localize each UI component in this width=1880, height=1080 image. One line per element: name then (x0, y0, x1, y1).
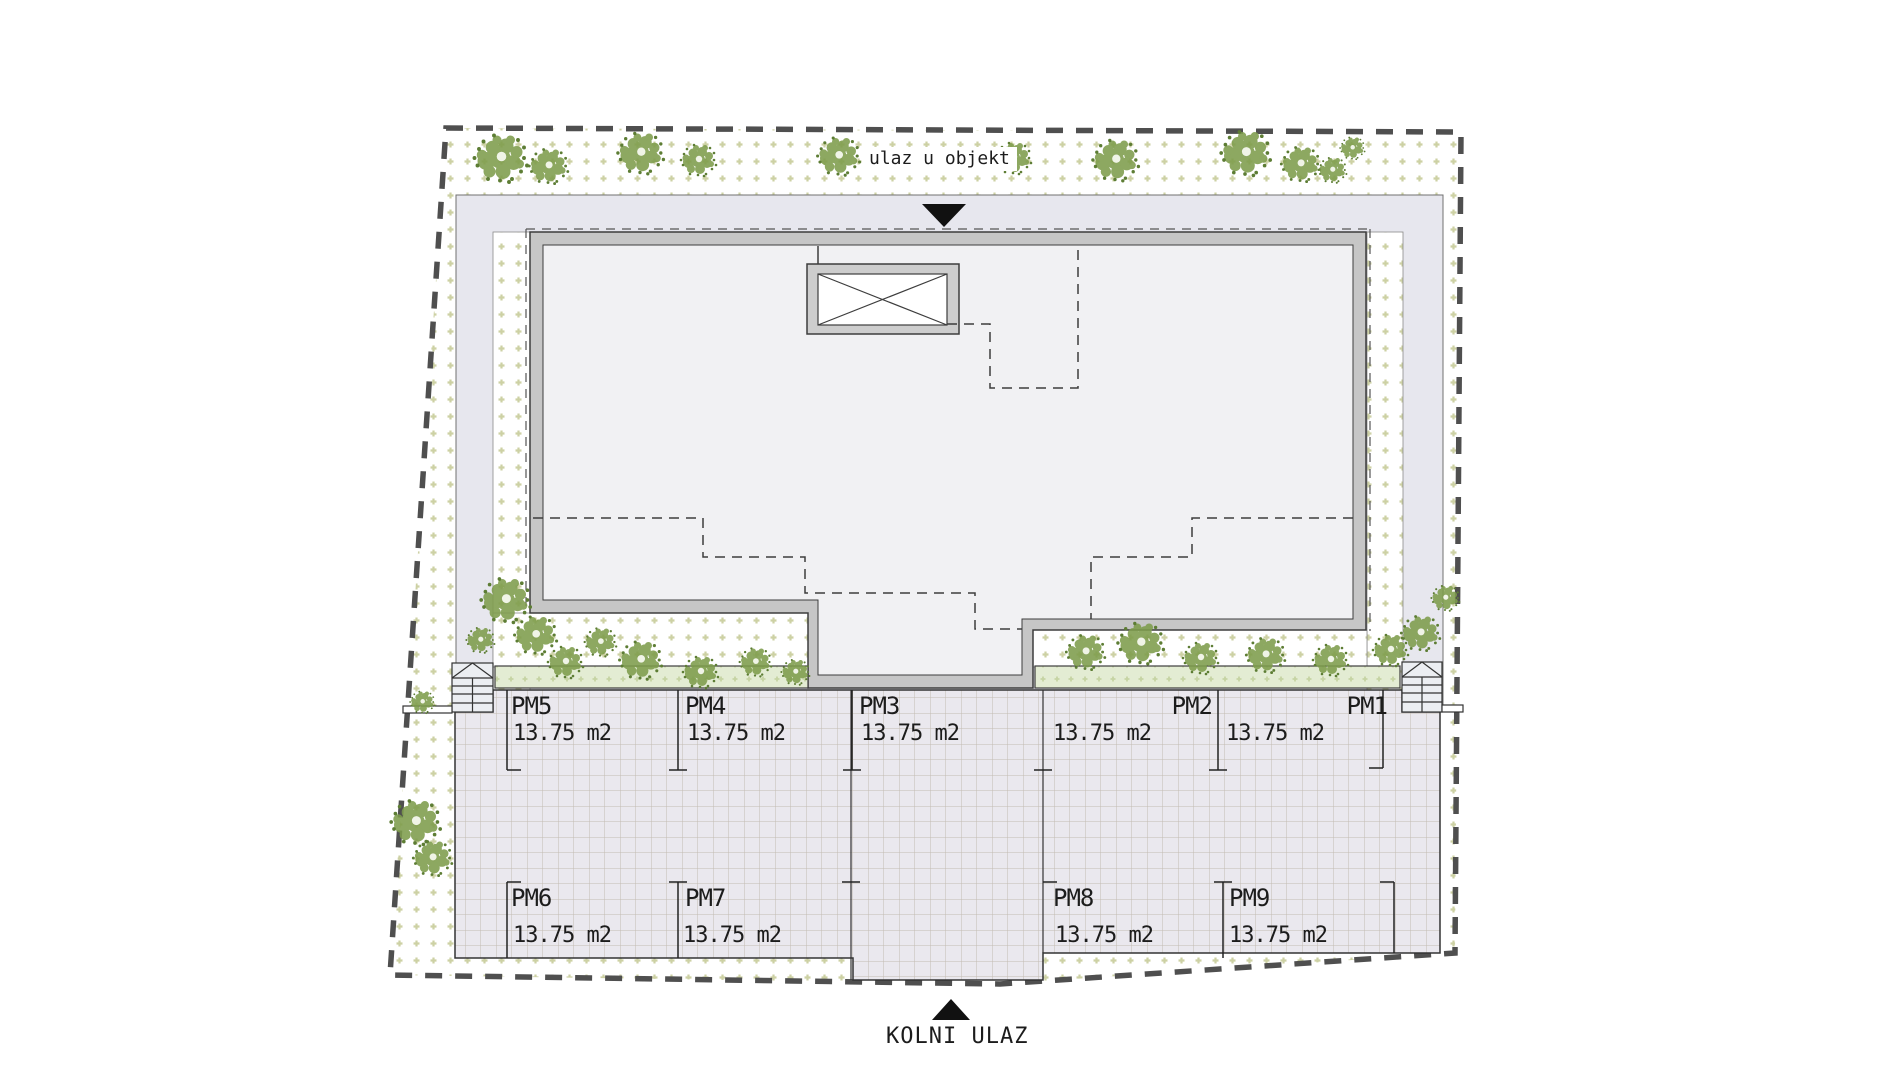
driveway-label: KOLNI ULAZ (886, 1026, 1028, 1048)
stall-label-pm3: PM3 (859, 694, 899, 718)
stall-label-pm7: PM7 (685, 886, 725, 910)
stall-label-pm2: PM2 (1172, 694, 1212, 718)
stall-area-pm3: 13.75 m2 (861, 723, 959, 745)
stairs-left (452, 663, 493, 712)
stairs-right (1402, 662, 1442, 712)
stall-area-pm1: 13.75 m2 (1226, 723, 1324, 745)
stall-label-pm9: PM9 (1229, 886, 1269, 910)
stall-area-pm2: 13.75 m2 (1053, 723, 1151, 745)
stall-area-pm4: 13.75 m2 (687, 723, 785, 745)
stall-label-pm1: PM1 (1347, 694, 1387, 718)
stall-area-pm8: 13.75 m2 (1055, 925, 1153, 947)
site-plan: ulaz u objekt PM5 13.75 m2 PM4 13.75 m2 … (0, 0, 1880, 1080)
stall-area-pm7: 13.75 m2 (683, 925, 781, 947)
stall-label-pm5: PM5 (511, 694, 551, 718)
stairs-right-landing (1442, 705, 1463, 712)
green-strip-right (1367, 232, 1403, 690)
stall-area-pm6: 13.75 m2 (513, 925, 611, 947)
driveway-arrow-up-icon (932, 999, 970, 1020)
stall-area-pm5: 13.75 m2 (513, 723, 611, 745)
stall-label-pm8: PM8 (1053, 886, 1093, 910)
entrance-label: ulaz u objekt (862, 147, 1017, 171)
stall-label-pm4: PM4 (685, 694, 725, 718)
stall-label-pm6: PM6 (511, 886, 551, 910)
stall-area-pm9: 13.75 m2 (1229, 925, 1327, 947)
